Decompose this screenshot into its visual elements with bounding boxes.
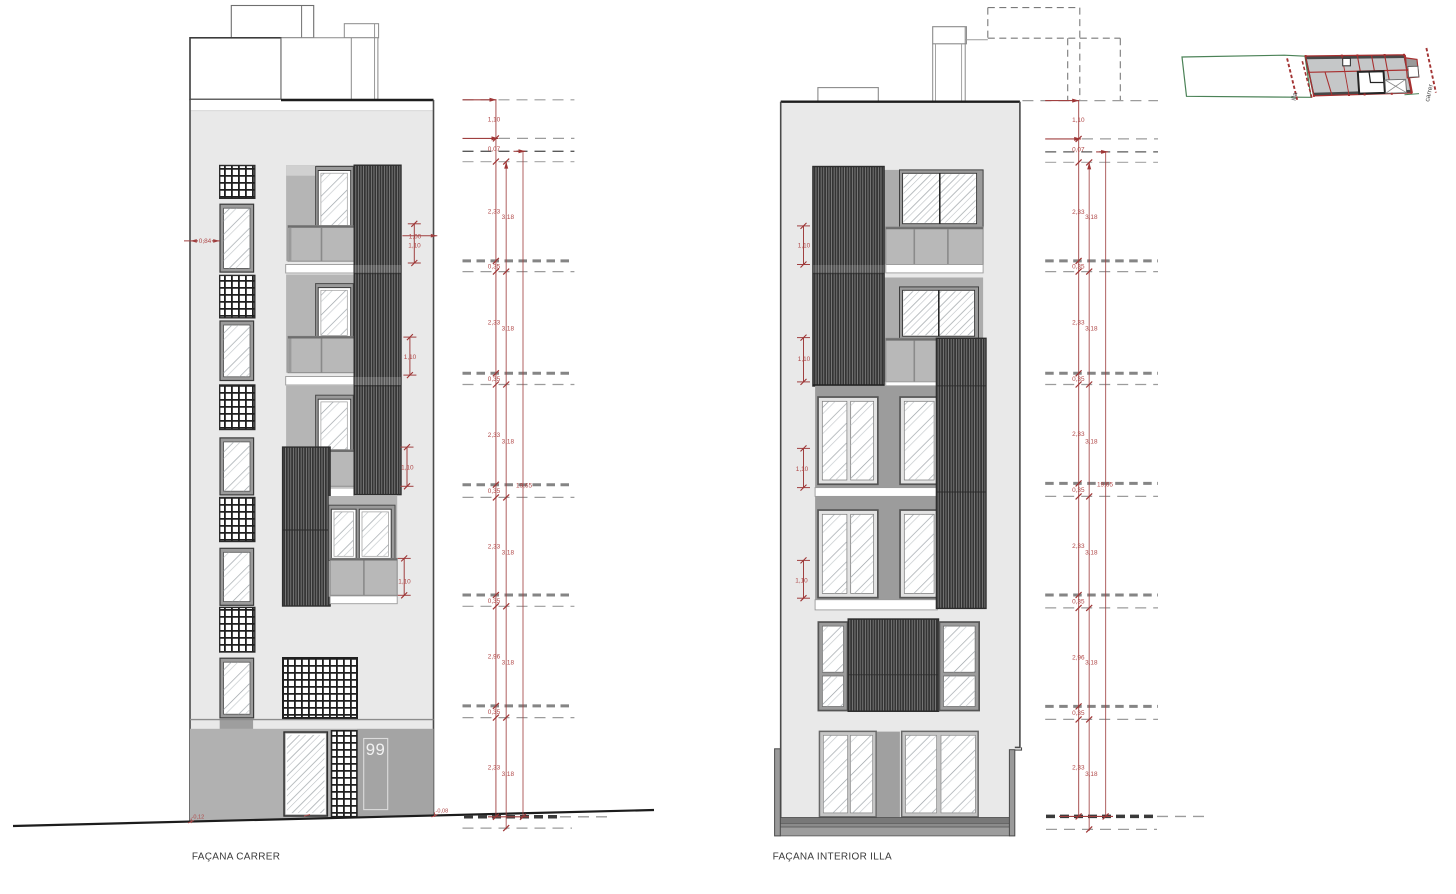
svg-text:2,33: 2,33 <box>1072 764 1085 771</box>
svg-text:0,07: 0,07 <box>488 146 501 153</box>
svg-text:3,18: 3,18 <box>502 660 515 667</box>
svg-text:0,35: 0,35 <box>1072 487 1085 494</box>
svg-text:3,18: 3,18 <box>1085 214 1098 221</box>
svg-text:0,35: 0,35 <box>1072 599 1085 606</box>
svg-text:1,10: 1,10 <box>798 243 811 250</box>
svg-text:2,33: 2,33 <box>488 543 501 550</box>
svg-text:1,10: 1,10 <box>796 466 809 473</box>
svg-text:-0,08: -0,08 <box>436 808 449 814</box>
svg-text:2,33: 2,33 <box>488 320 501 327</box>
svg-text:0,35: 0,35 <box>1072 264 1085 271</box>
svg-text:19,65: 19,65 <box>516 482 532 489</box>
svg-text:1,10: 1,10 <box>404 354 417 361</box>
svg-text:99: 99 <box>366 740 385 759</box>
svg-text:FAÇANA INTERIOR ILLA: FAÇANA INTERIOR ILLA <box>773 852 892 863</box>
svg-text:3,18: 3,18 <box>1085 660 1098 667</box>
svg-text:3,18: 3,18 <box>502 439 515 446</box>
svg-text:2,33: 2,33 <box>488 432 501 439</box>
svg-text:0,07: 0,07 <box>1072 147 1085 154</box>
svg-text:0,35: 0,35 <box>488 264 501 271</box>
svg-text:1,10: 1,10 <box>401 465 414 472</box>
svg-text:0,35: 0,35 <box>488 598 501 605</box>
svg-text:1,10: 1,10 <box>1072 117 1085 124</box>
svg-text:3,18: 3,18 <box>1085 771 1098 778</box>
svg-text:3,18: 3,18 <box>1085 439 1098 446</box>
svg-text:2,33: 2,33 <box>1072 209 1085 216</box>
svg-text:2,33: 2,33 <box>488 209 501 216</box>
svg-text:3,18: 3,18 <box>502 549 515 556</box>
svg-text:0,35: 0,35 <box>488 376 501 383</box>
svg-text:0,35: 0,35 <box>1072 710 1085 717</box>
svg-text:3,18: 3,18 <box>1085 549 1098 556</box>
svg-text:1,10: 1,10 <box>408 243 421 250</box>
svg-text:2,33: 2,33 <box>1072 431 1085 438</box>
svg-text:FAÇANA CARRER: FAÇANA CARRER <box>192 852 280 863</box>
svg-text:1,10: 1,10 <box>798 356 811 363</box>
svg-text:2,96: 2,96 <box>488 653 501 660</box>
svg-text:1,10: 1,10 <box>398 579 411 586</box>
svg-text:1,00: 1,00 <box>409 233 422 240</box>
svg-text:3,18: 3,18 <box>1085 326 1098 333</box>
svg-text:0,35: 0,35 <box>488 488 501 495</box>
svg-text:0,35: 0,35 <box>1072 376 1085 383</box>
svg-text:-0,12: -0,12 <box>192 815 205 821</box>
svg-text:1,10: 1,10 <box>488 116 501 123</box>
svg-text:1,10: 1,10 <box>795 577 808 584</box>
svg-text:3,18: 3,18 <box>502 214 515 221</box>
svg-text:2,33: 2,33 <box>1072 320 1085 327</box>
svg-text:19,65: 19,65 <box>1097 481 1113 488</box>
svg-text:2,33: 2,33 <box>488 764 501 771</box>
svg-text:2,96: 2,96 <box>1072 655 1085 662</box>
svg-text:3,18: 3,18 <box>502 771 515 778</box>
svg-text:0,84: 0,84 <box>199 238 212 245</box>
svg-text:2,33: 2,33 <box>1072 543 1085 550</box>
svg-text:3,18: 3,18 <box>502 326 515 333</box>
svg-text:0,35: 0,35 <box>488 709 501 716</box>
